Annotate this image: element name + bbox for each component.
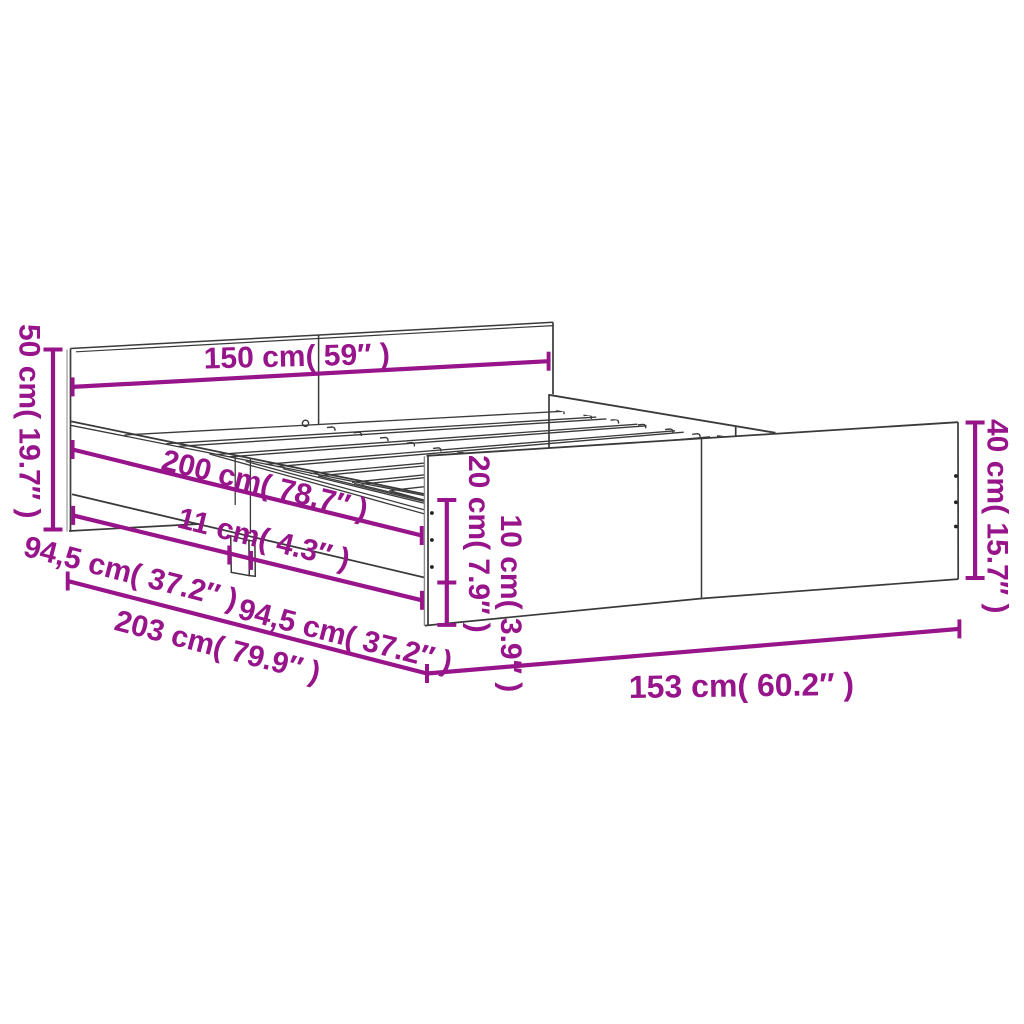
svg-text:20 cm( 7.9″ ): 20 cm( 7.9″ ) [462, 455, 495, 633]
svg-text:150 cm( 59″ ): 150 cm( 59″ ) [203, 338, 390, 376]
svg-text:153 cm( 60.2″ ): 153 cm( 60.2″ ) [629, 666, 855, 705]
svg-text:50 cm( 19.7″ ): 50 cm( 19.7″ ) [13, 324, 46, 518]
svg-text:40 cm( 15.7″ ): 40 cm( 15.7″ ) [981, 419, 1014, 613]
svg-text:10 cm( 3.9″ ): 10 cm( 3.9″ ) [494, 515, 527, 693]
